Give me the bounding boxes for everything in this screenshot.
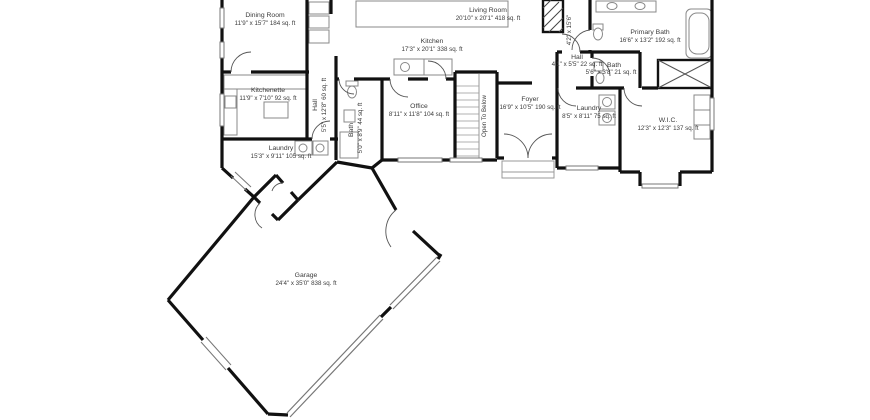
room-label-upper-hall: 4'2" x 15'6" — [566, 15, 573, 46]
svg-text:Laundry: Laundry — [269, 145, 294, 152]
svg-text:20'10" x 20'1" 418 sq. ft: 20'10" x 20'1" 418 sq. ft — [456, 15, 521, 22]
room-label-dining: Dining Room 11'9" x 15'7" 184 sq. ft — [235, 12, 296, 27]
svg-text:Open To Below: Open To Below — [481, 95, 488, 137]
entry-stoop — [502, 161, 554, 178]
svg-text:Garage: Garage — [295, 272, 318, 279]
svg-text:11'9" x 7'10" 92 sq. ft: 11'9" x 7'10" 92 sq. ft — [239, 95, 296, 102]
svg-text:8'5" x 8'11" 75 sq. ft: 8'5" x 8'11" 75 sq. ft — [562, 113, 616, 120]
svg-text:16'9" x 10'5" 190 sq. ft: 16'9" x 10'5" 190 sq. ft — [499, 104, 560, 111]
svg-text:Kitchenette: Kitchenette — [251, 87, 285, 94]
svg-text:5'5" x 12'8" 60 sq. ft: 5'5" x 12'8" 60 sq. ft — [321, 78, 328, 133]
svg-text:4'1" x 5'5" 22 sq. ft: 4'1" x 5'5" 22 sq. ft — [552, 61, 603, 68]
svg-text:15'3" x 9'11" 105 sq. ft: 15'3" x 9'11" 105 sq. ft — [251, 153, 312, 160]
stairs-open-to-below-label: Open To Below — [481, 95, 488, 137]
room-label-foyer: Foyer 16'9" x 10'5" 190 sq. ft — [499, 96, 560, 111]
kitchen-sink — [401, 63, 410, 72]
room-label-kitchen: Kitchen 17'3" x 20'1" 338 sq. ft — [401, 38, 462, 53]
toilet — [346, 81, 358, 86]
svg-text:8'11" x 11'8" 104 sq. ft: 8'11" x 11'8" 104 sq. ft — [389, 111, 449, 118]
svg-text:Laundry: Laundry — [577, 105, 602, 112]
fixtures-layer — [224, 1, 712, 178]
svg-text:4'2" x 15'6": 4'2" x 15'6" — [566, 15, 573, 46]
svg-text:Bath: Bath — [607, 62, 621, 69]
room-label-garage: Garage 24'4" x 35'0" 838 sq. ft — [275, 272, 336, 287]
chimney-hatch — [543, 0, 563, 32]
svg-text:5'0" x 8'9" 44 sq. ft: 5'0" x 8'9" 44 sq. ft — [357, 102, 364, 153]
svg-text:Dining Room: Dining Room — [245, 12, 285, 19]
closet-shelves — [694, 95, 710, 139]
svg-text:Foyer: Foyer — [521, 96, 539, 103]
svg-text:16'6" x 13'2" 192 sq. ft: 16'6" x 13'2" 192 sq. ft — [619, 37, 680, 44]
svg-text:Hall: Hall — [571, 54, 583, 61]
svg-text:Kitchen: Kitchen — [421, 38, 444, 45]
room-label-primary-bath: Primary Bath 16'6" x 13'2" 192 sq. ft — [619, 29, 680, 44]
svg-text:24'4" x 35'0" 838 sq. ft: 24'4" x 35'0" 838 sq. ft — [275, 280, 336, 287]
kitchenette-sink — [225, 96, 236, 108]
room-label-office: Office 8'11" x 11'8" 104 sq. ft — [389, 103, 449, 118]
svg-text:Living Room: Living Room — [469, 7, 507, 14]
kitchen-island — [356, 1, 508, 27]
svg-text:Office: Office — [410, 103, 428, 110]
svg-text:Primary Bath: Primary Bath — [630, 29, 670, 36]
stairs-treads — [456, 74, 479, 158]
window-markers — [201, 8, 714, 370]
svg-text:12'3" x 12'3" 137 sq. ft: 12'3" x 12'3" 137 sq. ft — [637, 125, 698, 132]
room-label-wic: W.I.C. 12'3" x 12'3" 137 sq. ft — [637, 117, 698, 132]
bath-sink — [344, 110, 355, 122]
svg-text:W.I.C.: W.I.C. — [659, 117, 678, 124]
svg-text:Bath: Bath — [348, 123, 355, 137]
vanity — [596, 1, 656, 12]
svg-text:5'6" x 3'8" 21 sq. ft: 5'6" x 3'8" 21 sq. ft — [586, 69, 637, 76]
floor-plan-page: Dining Room 11'9" x 15'7" 184 sq. ft Kit… — [0, 0, 870, 420]
svg-text:17'3" x 20'1" 338 sq. ft: 17'3" x 20'1" 338 sq. ft — [401, 46, 462, 53]
floor-plan-drawing: Dining Room 11'9" x 15'7" 184 sq. ft Kit… — [0, 0, 870, 420]
svg-text:Hall: Hall — [312, 99, 319, 111]
svg-text:11'9" x 15'7" 184 sq. ft: 11'9" x 15'7" 184 sq. ft — [235, 20, 296, 27]
room-label-hall-right: Hall 4'1" x 5'5" 22 sq. ft — [552, 54, 603, 68]
linen-shower-box — [658, 60, 712, 88]
